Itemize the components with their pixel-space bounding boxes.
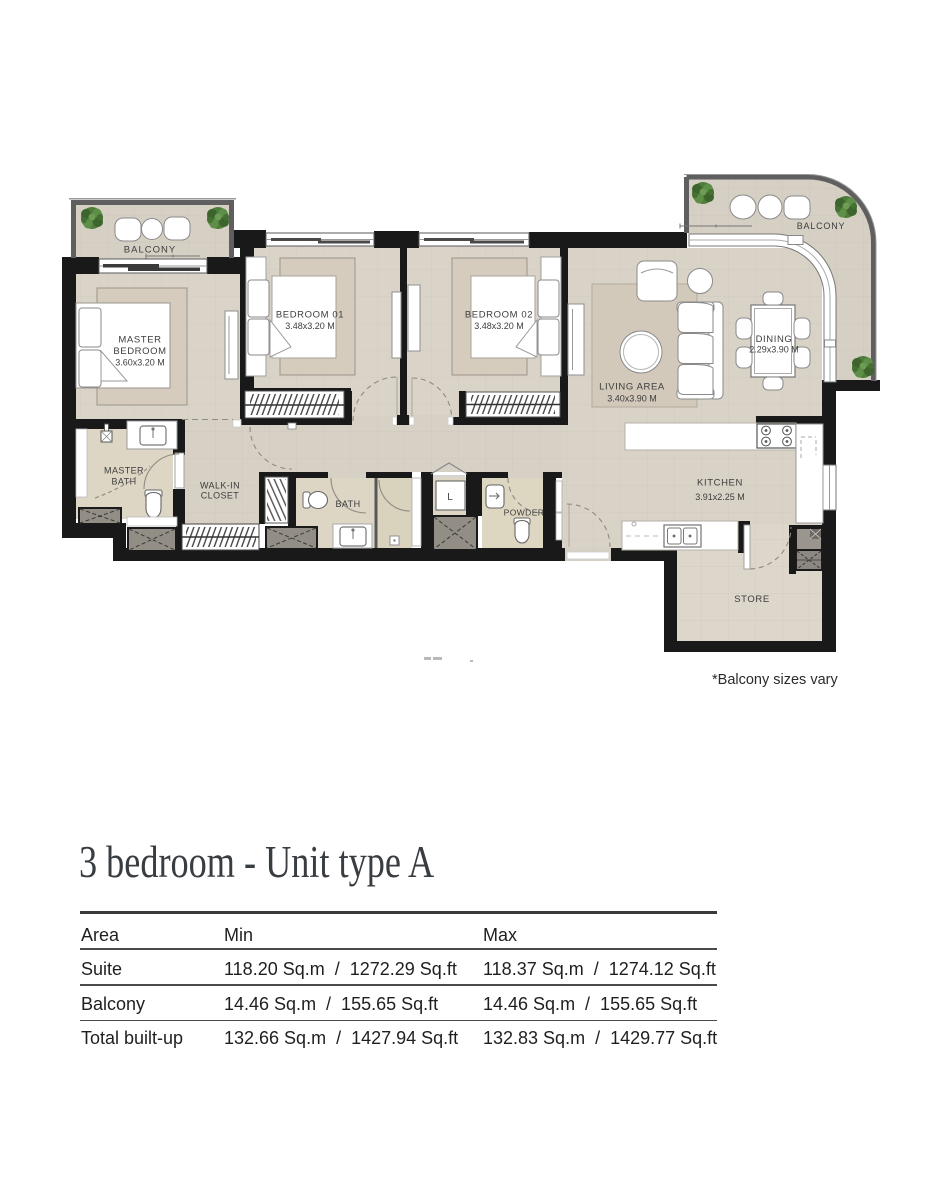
svg-text:MASTER: MASTER (118, 335, 161, 346)
svg-text:L: L (447, 492, 453, 503)
svg-text:BATH: BATH (112, 477, 137, 487)
svg-text:3.40x3.90 M: 3.40x3.90 M (607, 394, 657, 404)
svg-text:3.48x3.20 M: 3.48x3.20 M (285, 321, 335, 331)
svg-text:BEDROOM: BEDROOM (113, 346, 166, 357)
svg-text:STORE: STORE (734, 594, 770, 605)
svg-text:BALCONY: BALCONY (124, 245, 176, 256)
svg-text:3.60x3.20 M: 3.60x3.20 M (115, 358, 165, 368)
svg-text:MASTER: MASTER (104, 466, 144, 476)
svg-text:3.48x3.20 M: 3.48x3.20 M (474, 321, 524, 331)
svg-text:DINING: DINING (756, 334, 793, 345)
svg-text:POWDER: POWDER (504, 508, 545, 518)
svg-text:3.91x2.25 M: 3.91x2.25 M (695, 492, 745, 502)
svg-text:2.29x3.90 M: 2.29x3.90 M (749, 345, 799, 355)
svg-text:KITCHEN: KITCHEN (697, 478, 743, 489)
svg-text:LIVING AREA: LIVING AREA (599, 382, 665, 393)
svg-text:BATH: BATH (336, 499, 361, 509)
svg-text:BEDROOM 02: BEDROOM 02 (465, 310, 533, 321)
svg-text:CLOSET: CLOSET (201, 491, 240, 501)
svg-text:BALCONY: BALCONY (797, 221, 846, 231)
svg-text:WALK-IN: WALK-IN (200, 481, 240, 491)
svg-text:BEDROOM 01: BEDROOM 01 (276, 310, 344, 321)
